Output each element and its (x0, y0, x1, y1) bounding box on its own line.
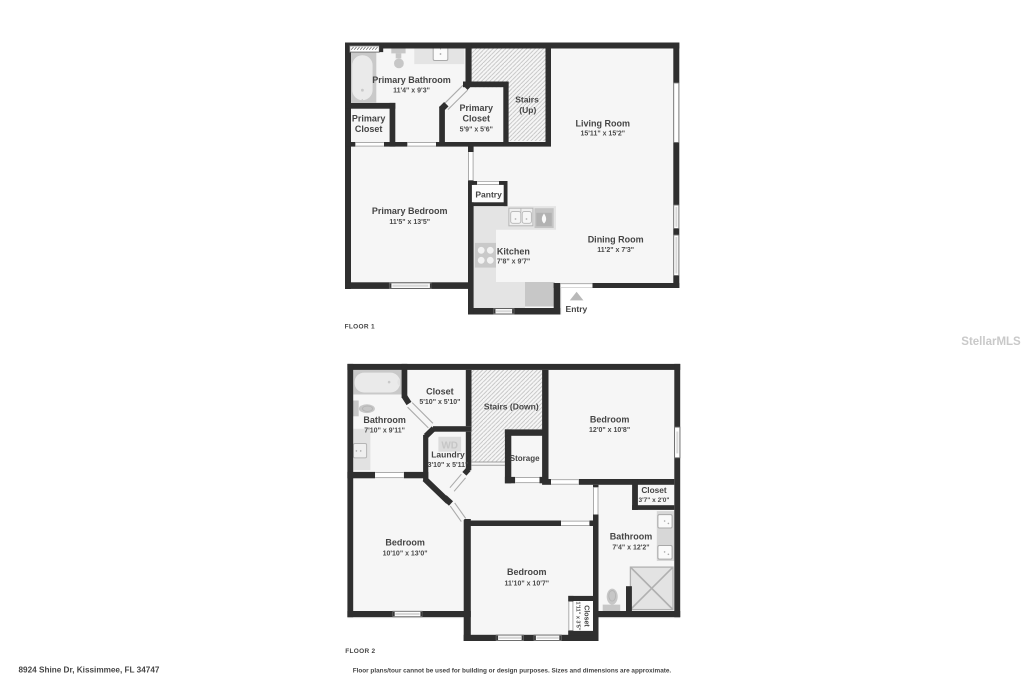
svg-text:11'5" x 13'5": 11'5" x 13'5" (389, 219, 430, 226)
svg-text:Dining Room: Dining Room (588, 234, 644, 244)
svg-text:Primary: Primary (352, 114, 386, 124)
svg-text:Closet: Closet (355, 124, 383, 134)
svg-text:Stairs: Stairs (515, 94, 539, 104)
svg-text:Closet: Closet (641, 485, 667, 495)
svg-text:Closet: Closet (463, 114, 491, 124)
svg-text:Entry: Entry (566, 304, 588, 314)
svg-text:15'11" x 15'2": 15'11" x 15'2" (580, 131, 625, 138)
svg-text:FLOOR 2: FLOOR 2 (345, 648, 375, 655)
svg-text:Primary Bathroom: Primary Bathroom (372, 75, 451, 85)
svg-text:Bathroom: Bathroom (610, 531, 653, 541)
svg-text:Pantry: Pantry (475, 189, 502, 199)
svg-text:(Up): (Up) (519, 105, 536, 115)
svg-text:Floor plans/tour cannot be use: Floor plans/tour cannot be used for buil… (353, 668, 672, 675)
svg-text:Closet: Closet (582, 605, 589, 627)
svg-text:11'2" x 7'3": 11'2" x 7'3" (597, 247, 634, 254)
svg-text:3'10" x 5'11": 3'10" x 5'11" (428, 462, 469, 469)
svg-text:11'4" x 9'3": 11'4" x 9'3" (393, 87, 430, 94)
svg-text:Bedroom: Bedroom (507, 567, 547, 577)
svg-text:Storage: Storage (510, 454, 540, 463)
svg-text:5'9" x 5'6": 5'9" x 5'6" (460, 126, 493, 133)
svg-text:7'4" x 12'2": 7'4" x 12'2" (612, 544, 649, 551)
svg-text:11'10" x 10'7": 11'10" x 10'7" (504, 580, 549, 587)
svg-text:7'10" x 9'11": 7'10" x 9'11" (364, 428, 405, 435)
svg-text:8924 Shine Dr, Kissimmee, FL 3: 8924 Shine Dr, Kissimmee, FL 34747 (19, 666, 160, 675)
svg-text:3'7" x 2'0": 3'7" x 2'0" (639, 497, 670, 504)
svg-text:Closet: Closet (426, 387, 454, 397)
svg-text:Stairs (Down): Stairs (Down) (484, 401, 539, 411)
svg-text:Primary Bedroom: Primary Bedroom (372, 206, 448, 216)
svg-text:Primary: Primary (460, 103, 494, 113)
svg-text:Laundry: Laundry (431, 450, 465, 460)
svg-text:12'0" x 10'8": 12'0" x 10'8" (589, 427, 630, 434)
svg-text:FLOOR 1: FLOOR 1 (345, 324, 375, 331)
svg-text:Kitchen: Kitchen (497, 247, 530, 257)
svg-text:10'10" x 13'0": 10'10" x 13'0" (383, 550, 428, 557)
svg-text:Living Room: Living Room (576, 118, 631, 128)
svg-text:7'8" x 9'7": 7'8" x 9'7" (497, 258, 530, 265)
svg-text:Bathroom: Bathroom (363, 415, 406, 425)
svg-text:1'11" x 3'5": 1'11" x 3'5" (575, 602, 581, 631)
svg-text:Bedroom: Bedroom (590, 415, 630, 425)
svg-text:5'10" x 5'10": 5'10" x 5'10" (419, 399, 460, 406)
svg-text:StellarMLS: StellarMLS (961, 336, 1021, 348)
svg-text:Bedroom: Bedroom (385, 538, 425, 548)
